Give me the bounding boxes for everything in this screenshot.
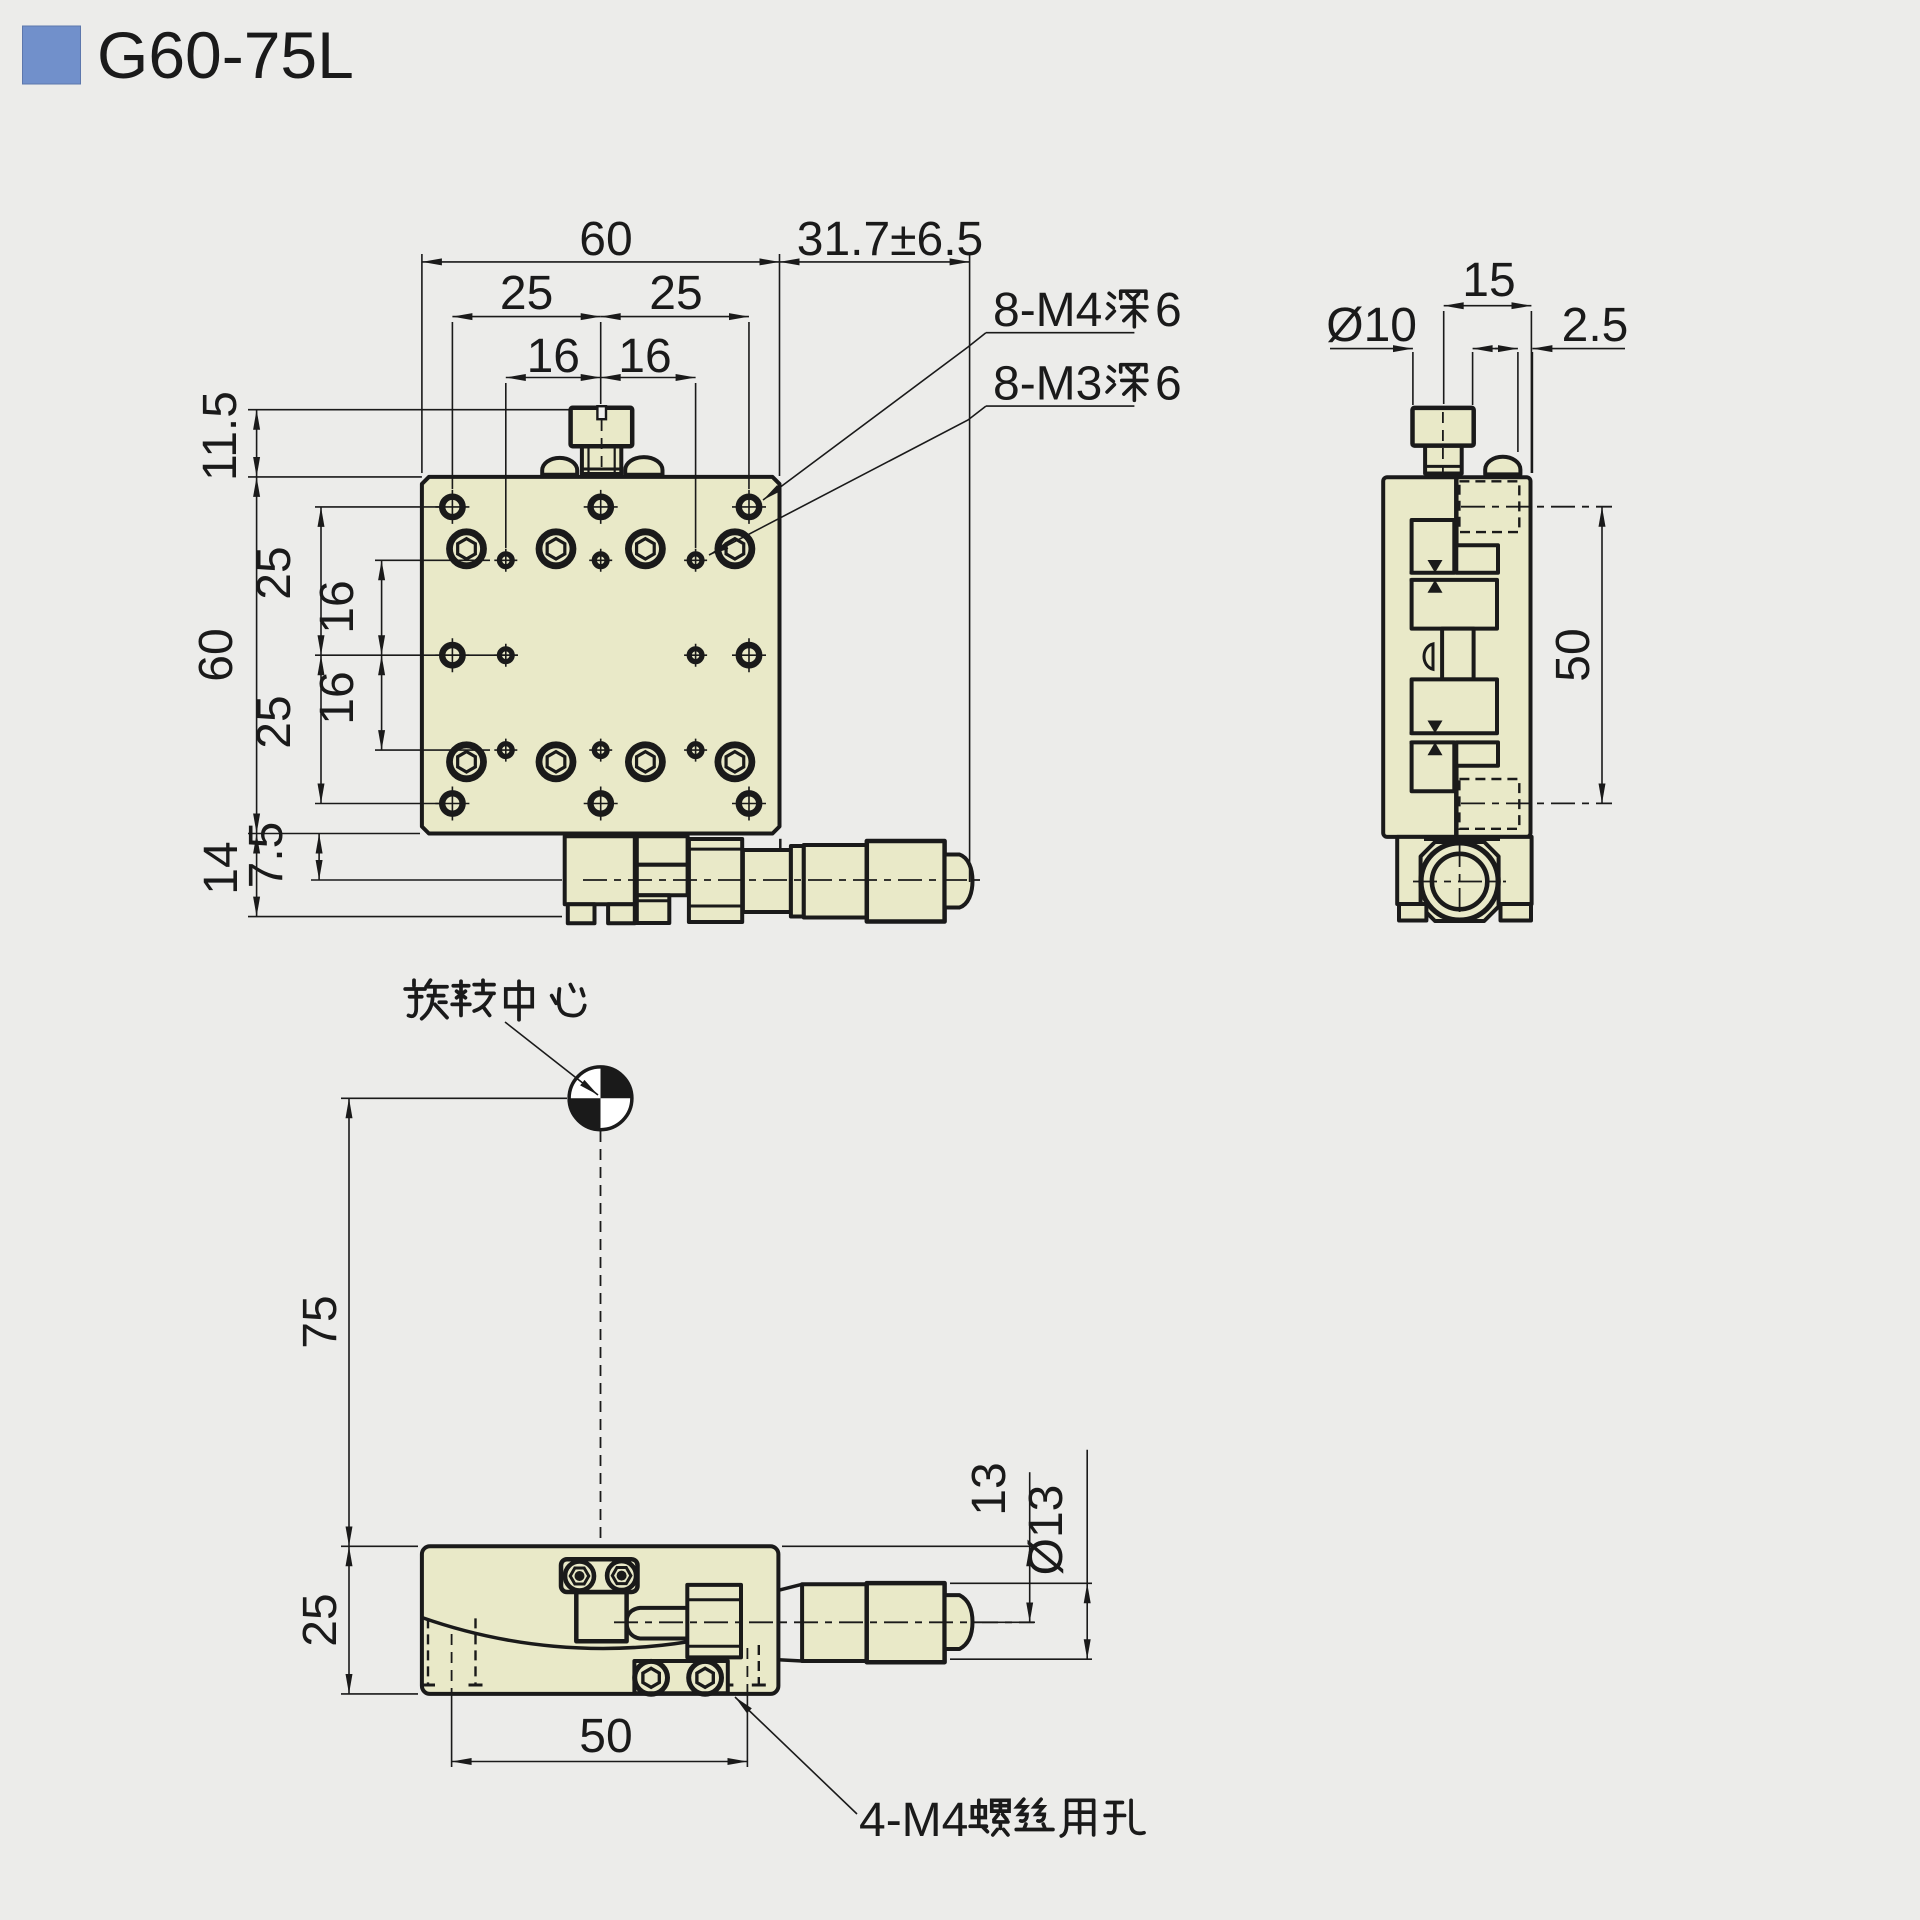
svg-text:G60-75L: G60-75L bbox=[97, 18, 354, 92]
svg-text:Ø13: Ø13 bbox=[1020, 1485, 1073, 1576]
svg-text:25: 25 bbox=[649, 267, 702, 320]
svg-text:4-M4: 4-M4 bbox=[859, 1794, 968, 1847]
svg-text:50: 50 bbox=[579, 1710, 632, 1763]
svg-text:50: 50 bbox=[1547, 628, 1600, 681]
svg-text:75: 75 bbox=[294, 1295, 347, 1348]
svg-text:16: 16 bbox=[618, 330, 671, 383]
svg-text:13: 13 bbox=[963, 1462, 1016, 1515]
svg-text:60: 60 bbox=[579, 213, 632, 266]
svg-text:16: 16 bbox=[311, 580, 364, 633]
svg-text:Ø10: Ø10 bbox=[1326, 299, 1417, 352]
svg-text:25: 25 bbox=[248, 695, 301, 748]
svg-text:6: 6 bbox=[1155, 284, 1182, 337]
svg-text:7.5: 7.5 bbox=[240, 822, 293, 889]
svg-text:15: 15 bbox=[1462, 254, 1515, 307]
svg-text:16: 16 bbox=[311, 671, 364, 724]
svg-text:60: 60 bbox=[190, 628, 243, 681]
svg-text:16: 16 bbox=[527, 330, 580, 383]
svg-text:25: 25 bbox=[500, 267, 553, 320]
svg-text:2.5: 2.5 bbox=[1562, 299, 1629, 352]
svg-text:8-M3: 8-M3 bbox=[993, 358, 1102, 411]
svg-text:25: 25 bbox=[294, 1593, 347, 1646]
svg-text:11.5: 11.5 bbox=[194, 391, 247, 481]
svg-text:6: 6 bbox=[1155, 358, 1182, 411]
svg-text:31.7±6.5: 31.7±6.5 bbox=[797, 213, 984, 266]
svg-text:8-M4: 8-M4 bbox=[993, 284, 1102, 337]
svg-text:25: 25 bbox=[248, 546, 301, 599]
